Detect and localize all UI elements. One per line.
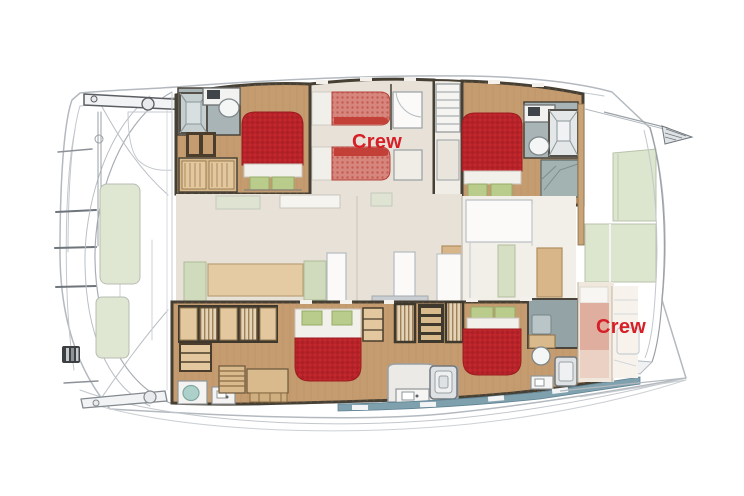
svg-text:Crew: Crew	[352, 131, 402, 153]
svg-text:Crew: Crew	[596, 316, 646, 338]
